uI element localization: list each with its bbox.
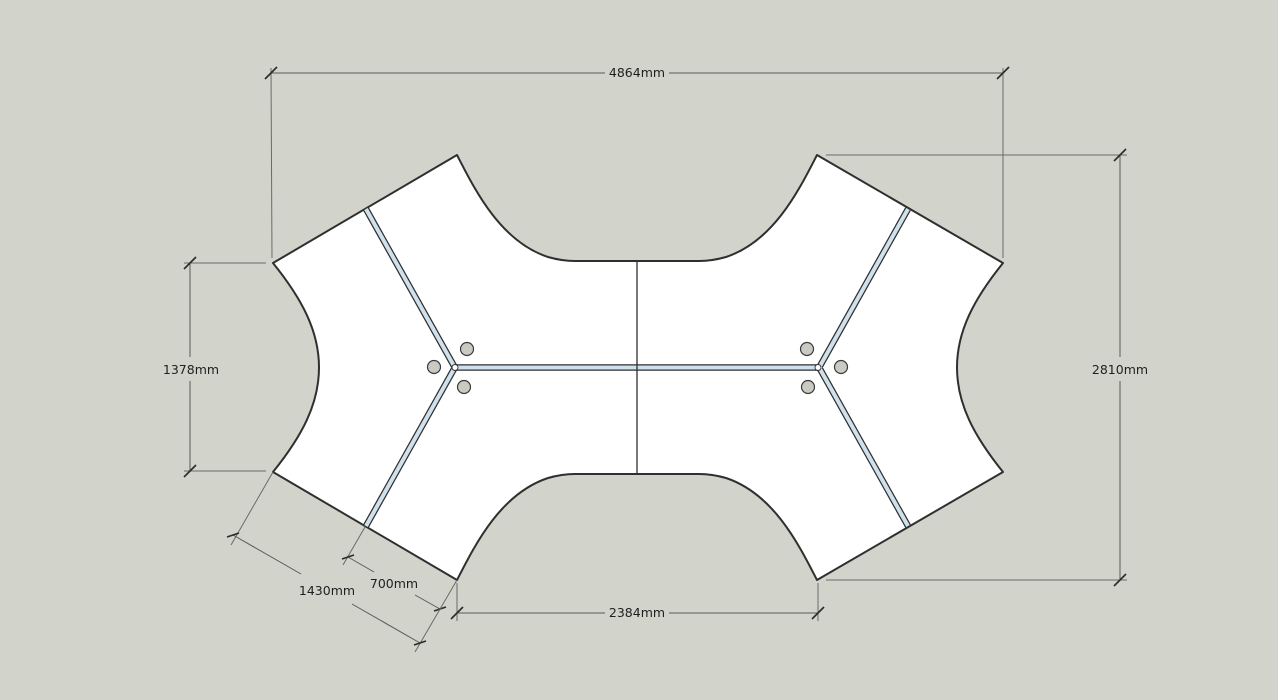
dimension-label: 2810mm — [1092, 362, 1148, 377]
left-hub-junction — [452, 365, 458, 371]
right-hub-junction — [815, 365, 821, 371]
dimension-label: 1378mm — [163, 362, 219, 377]
dimension-label: 700mm — [370, 576, 418, 591]
grommet-hole — [802, 381, 815, 394]
drawing-viewport[interactable]: 4864mm 1378mm 2810mm 2384mm 7 — [0, 0, 1278, 700]
grommet-hole — [428, 361, 441, 374]
grommet-hole — [835, 361, 848, 374]
dimension-label: 1430mm — [299, 583, 355, 598]
cad-canvas[interactable]: 4864mm 1378mm 2810mm 2384mm 7 — [0, 0, 1278, 700]
dimension-label: 2384mm — [609, 605, 665, 620]
grommet-hole — [458, 381, 471, 394]
dimension-label: 4864mm — [609, 65, 665, 80]
grommet-hole — [461, 343, 474, 356]
grommet-hole — [801, 343, 814, 356]
